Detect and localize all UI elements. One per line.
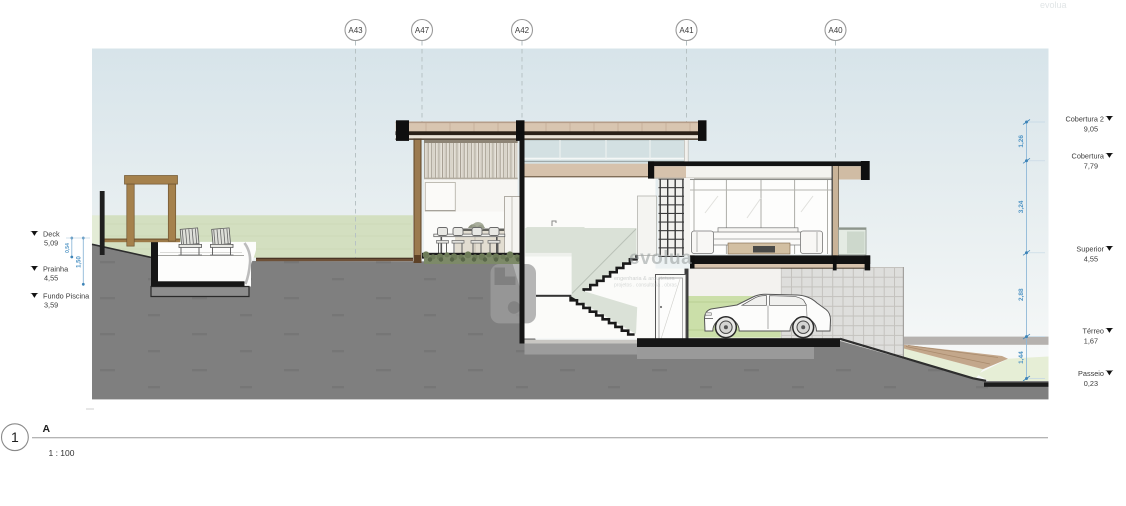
svg-text:1,50: 1,50 bbox=[77, 256, 83, 268]
svg-text:9,05: 9,05 bbox=[1084, 125, 1098, 134]
svg-text:A42: A42 bbox=[515, 26, 530, 35]
svg-text:7,79: 7,79 bbox=[1084, 162, 1098, 171]
svg-text:1: 1 bbox=[11, 429, 19, 445]
svg-text:1,67: 1,67 bbox=[1084, 337, 1098, 346]
svg-text:Superior: Superior bbox=[1076, 245, 1104, 254]
svg-text:Cobertura 2: Cobertura 2 bbox=[1065, 115, 1104, 124]
svg-text:0,54: 0,54 bbox=[65, 243, 71, 253]
svg-text:2,88: 2,88 bbox=[1018, 288, 1025, 301]
svg-text:Prainha: Prainha bbox=[43, 265, 69, 274]
svg-text:A47: A47 bbox=[415, 26, 430, 35]
svg-text:3,24: 3,24 bbox=[1018, 200, 1025, 213]
svg-text:1 : 100: 1 : 100 bbox=[49, 448, 75, 458]
svg-text:1,44: 1,44 bbox=[1018, 351, 1025, 364]
svg-text:evolua: evolua bbox=[629, 248, 692, 269]
svg-text:A41: A41 bbox=[679, 26, 694, 35]
svg-text:1,26: 1,26 bbox=[1018, 135, 1025, 148]
svg-text:Deck: Deck bbox=[43, 230, 60, 239]
svg-text:A40: A40 bbox=[828, 26, 843, 35]
svg-text:evolua: evolua bbox=[1040, 0, 1067, 10]
svg-text:0,23: 0,23 bbox=[1084, 379, 1098, 388]
svg-text:Térreo: Térreo bbox=[1083, 327, 1105, 336]
svg-text:Fundo Piscina: Fundo Piscina bbox=[43, 292, 90, 301]
svg-text:5,09: 5,09 bbox=[44, 239, 58, 248]
svg-text:engenharia & arquitetura: engenharia & arquitetura bbox=[614, 276, 675, 282]
svg-text:4,55: 4,55 bbox=[1084, 255, 1098, 264]
svg-text:Passeio: Passeio bbox=[1078, 369, 1104, 378]
svg-text:4,55: 4,55 bbox=[44, 274, 58, 283]
svg-text:Cobertura: Cobertura bbox=[1072, 152, 1105, 161]
svg-text:3,59: 3,59 bbox=[44, 301, 58, 310]
svg-text:projetos . consultoria . obras: projetos . consultoria . obras bbox=[614, 283, 677, 289]
svg-text:A: A bbox=[43, 423, 51, 435]
svg-text:A43: A43 bbox=[348, 26, 363, 35]
